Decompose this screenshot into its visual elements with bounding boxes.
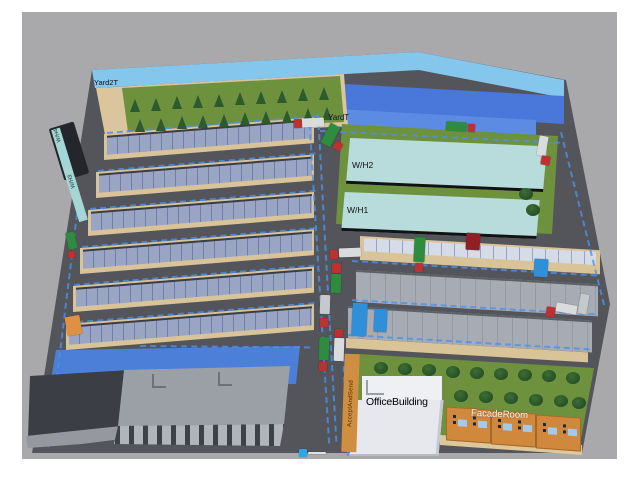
tree-round <box>526 204 540 216</box>
workstation-icon <box>503 423 512 431</box>
truck-cab-red[interactable] <box>330 250 338 259</box>
truck-trailer-white[interactable] <box>334 338 345 361</box>
accept-and-send-label: AcceptAndSend <box>347 379 355 426</box>
roof-hatch-mark <box>218 372 232 386</box>
tree-round <box>504 392 518 404</box>
desk-icon <box>563 424 566 427</box>
workstation-icon <box>548 427 557 435</box>
wh1-label: W/H1 <box>347 205 368 215</box>
facade-room-unit[interactable] <box>536 414 581 451</box>
yardt-label: YardT <box>328 113 349 122</box>
tree-round <box>518 369 532 381</box>
truck-trailer-green[interactable] <box>413 237 425 263</box>
truck-trailer-gray[interactable] <box>320 295 331 314</box>
tree-round <box>374 362 388 374</box>
tree-round <box>566 372 580 384</box>
yard2t-label: Yard2T <box>94 78 118 87</box>
truck-trailer-green[interactable] <box>446 121 468 131</box>
workstation-icon <box>523 425 532 433</box>
sign-panel-wh4: W/H4 <box>51 128 74 177</box>
truck-cab-red[interactable] <box>332 263 341 273</box>
container-darkred[interactable] <box>466 233 481 251</box>
tree-round <box>542 370 556 382</box>
warehouse-wh1[interactable] <box>341 192 539 239</box>
truck-cab-red[interactable] <box>320 318 328 327</box>
tree-round <box>572 397 586 409</box>
tree-round <box>454 390 468 402</box>
office-building-label: OfficeBuilding <box>366 396 428 408</box>
truck-trailer-green[interactable] <box>331 274 342 293</box>
truck-trailer-white[interactable] <box>302 117 324 127</box>
tree-round <box>422 364 436 376</box>
tree-round <box>479 391 493 403</box>
desk-icon <box>453 421 456 424</box>
workstation-icon <box>568 429 577 437</box>
office-front-face <box>350 400 444 456</box>
truck-trailer-green[interactable] <box>319 337 330 360</box>
truck-cab-red[interactable] <box>415 263 423 272</box>
tree-round <box>494 368 508 380</box>
roof-hatch-mark <box>152 374 166 388</box>
workstation-icon <box>478 421 487 429</box>
desk-icon <box>453 415 456 418</box>
tree-round <box>554 395 568 407</box>
container-blue[interactable] <box>534 259 549 278</box>
office-building[interactable] <box>352 376 444 456</box>
warehouse-wh2[interactable] <box>346 138 547 192</box>
container-orange[interactable] <box>64 315 82 336</box>
truck-trailer-white[interactable] <box>339 248 361 258</box>
marker-line-white[interactable] <box>308 452 326 454</box>
marker-blue-cube[interactable] <box>299 449 307 457</box>
container-blue[interactable] <box>373 309 387 333</box>
container-blue[interactable] <box>351 303 368 337</box>
tree-round <box>470 367 484 379</box>
wh2-label: W/H2 <box>352 160 373 170</box>
desk-icon <box>518 426 521 429</box>
desk-icon <box>543 429 546 432</box>
workstation-icon <box>458 419 467 427</box>
desk-icon <box>563 430 566 433</box>
truck-cab-red[interactable] <box>335 329 343 337</box>
tree-round <box>529 394 543 406</box>
truck-cab-red[interactable] <box>545 306 556 317</box>
desk-icon <box>498 425 501 428</box>
truck-cab-red[interactable] <box>540 155 550 165</box>
tree-round <box>519 188 533 200</box>
simulation-3d-viewport[interactable]: AcceptAndSend W/H4 W/H3 Yard2T YardT W/H… <box>22 12 617 459</box>
truck-cab-red[interactable] <box>468 124 476 132</box>
desk-icon <box>473 422 476 425</box>
desk-icon <box>543 423 546 426</box>
truck-cab-red[interactable] <box>319 362 327 371</box>
tree-round <box>446 366 460 378</box>
tree-round <box>398 363 412 375</box>
office-roof-edge <box>366 380 384 395</box>
